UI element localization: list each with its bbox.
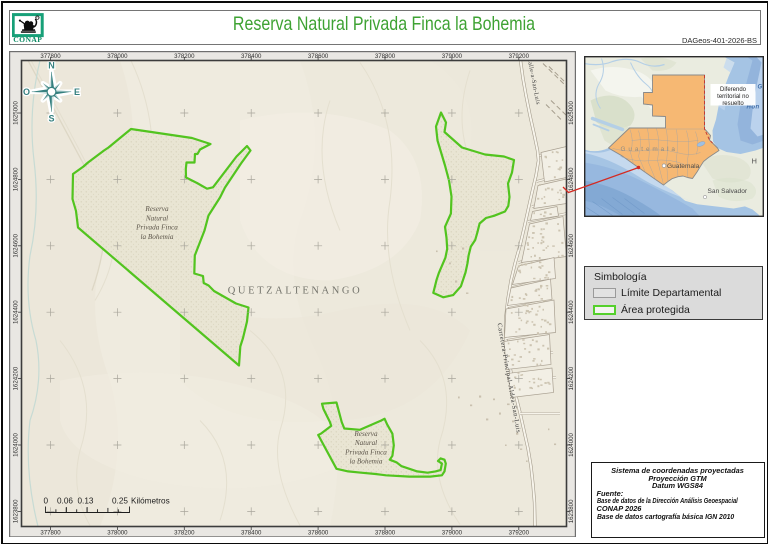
svg-text:QUETZALTENANGO: QUETZALTENANGO <box>228 285 363 296</box>
svg-text:1624800: 1624800 <box>568 166 575 190</box>
svg-text:1624600: 1624600 <box>12 233 19 257</box>
svg-text:Guatemala: Guatemala <box>620 146 677 153</box>
svg-text:0.13: 0.13 <box>78 496 94 505</box>
svg-text:1624400: 1624400 <box>12 299 19 323</box>
svg-text:N: N <box>48 60 55 70</box>
svg-text:1623800: 1623800 <box>568 498 575 522</box>
svg-text:1625000: 1625000 <box>12 100 19 124</box>
svg-text:Privada Finca: Privada Finca <box>344 448 387 456</box>
svg-text:la Bohemia: la Bohemia <box>350 457 383 465</box>
svg-text:0.06: 0.06 <box>57 496 73 505</box>
svg-text:Natural: Natural <box>354 439 377 447</box>
svg-text:1624000: 1624000 <box>568 432 575 456</box>
svg-text:S: S <box>48 113 54 123</box>
svg-text:1624200: 1624200 <box>12 366 19 390</box>
svg-text:378000: 378000 <box>107 529 128 536</box>
svg-text:377800: 377800 <box>40 53 61 60</box>
svg-text:Diferendo: Diferendo <box>719 87 746 93</box>
svg-text:378600: 378600 <box>308 529 329 536</box>
svg-text:1624600: 1624600 <box>568 233 575 257</box>
svg-text:territorial no: territorial no <box>717 94 749 100</box>
svg-text:la Bohemia: la Bohemia <box>141 232 174 240</box>
svg-text:0: 0 <box>44 496 49 505</box>
svg-text:378800: 378800 <box>375 53 396 60</box>
svg-text:378800: 378800 <box>375 529 396 536</box>
svg-text:Kilómetros: Kilómetros <box>131 496 170 505</box>
svg-text:378200: 378200 <box>174 53 195 60</box>
svg-text:Guatemala: Guatemala <box>667 163 700 170</box>
svg-text:CONAP: CONAP <box>13 35 42 44</box>
svg-text:Privada Finca: Privada Finca <box>135 223 178 231</box>
svg-text:379200: 379200 <box>509 53 530 60</box>
svg-text:1625000: 1625000 <box>568 100 575 124</box>
svg-text:Reserva: Reserva <box>144 205 169 213</box>
svg-text:Natural: Natural <box>145 214 168 222</box>
svg-text:O: O <box>23 87 30 97</box>
svg-text:378400: 378400 <box>241 529 262 536</box>
svg-text:379000: 379000 <box>442 529 463 536</box>
svg-text:1624200: 1624200 <box>568 366 575 390</box>
svg-text:Reserva: Reserva <box>353 430 378 438</box>
svg-text:E: E <box>74 87 80 97</box>
svg-text:H o: H o <box>751 156 764 165</box>
svg-text:San Salvador: San Salvador <box>707 188 747 195</box>
svg-text:378600: 378600 <box>308 53 329 60</box>
svg-text:378400: 378400 <box>241 53 262 60</box>
svg-text:379000: 379000 <box>442 53 463 60</box>
svg-text:G: G <box>757 84 762 90</box>
svg-text:379200: 379200 <box>509 529 530 536</box>
svg-text:378000: 378000 <box>107 53 128 60</box>
svg-text:1624000: 1624000 <box>12 432 19 456</box>
svg-text:1624400: 1624400 <box>568 299 575 323</box>
svg-text:377800: 377800 <box>40 529 61 536</box>
svg-text:378200: 378200 <box>174 529 195 536</box>
svg-text:1624800: 1624800 <box>12 166 19 190</box>
svg-text:resuelto: resuelto <box>722 101 744 107</box>
svg-text:1623800: 1623800 <box>12 498 19 522</box>
svg-text:0.25: 0.25 <box>112 496 128 505</box>
